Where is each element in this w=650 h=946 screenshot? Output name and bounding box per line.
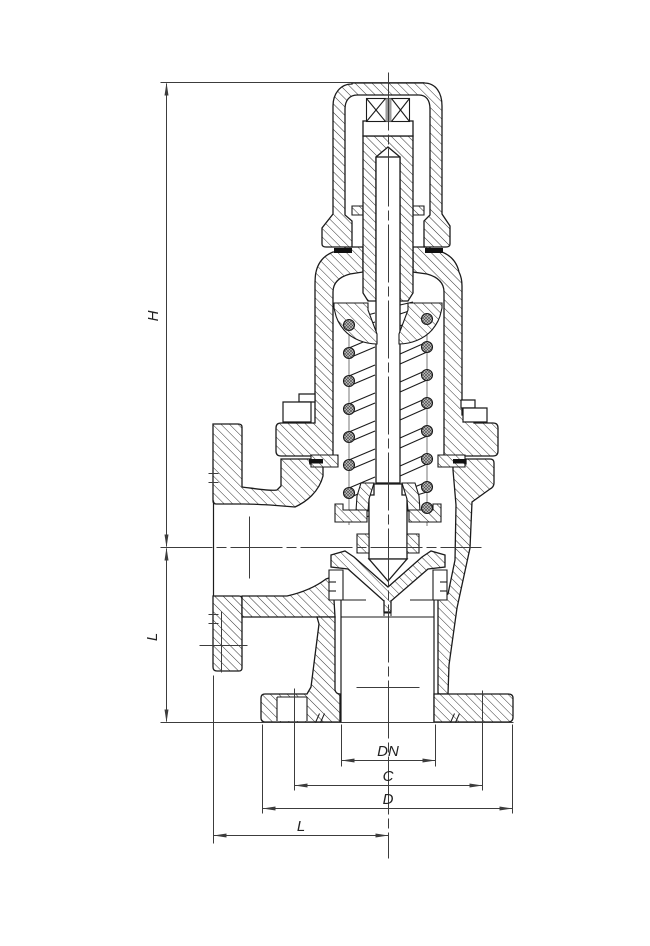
svg-text:D: D [383, 791, 394, 808]
svg-text:L: L [144, 633, 161, 641]
svg-text:L: L [297, 818, 305, 835]
svg-text:C: C [383, 768, 394, 785]
svg-text:H: H [145, 310, 162, 321]
svg-text:DN: DN [377, 743, 399, 760]
